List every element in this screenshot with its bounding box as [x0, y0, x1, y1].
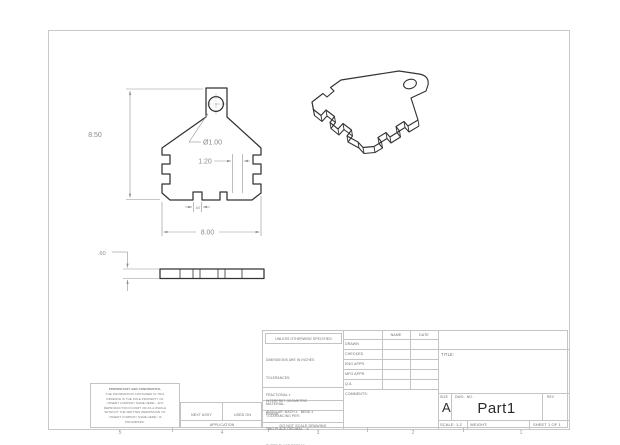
isometric-view	[312, 71, 428, 154]
dim-thickness: .60	[98, 251, 106, 257]
side-outline	[160, 269, 264, 279]
material-label: MATERIAL	[266, 402, 285, 406]
iso-hole	[403, 78, 418, 90]
dim-notch-pos: 1.20	[198, 159, 212, 166]
drawing-sheet: 5 4 3 2 1 8.50 Ø1.00 1	[0, 0, 620, 445]
dim-front-height: 8.50	[88, 132, 102, 139]
rev-label: REV	[547, 395, 554, 399]
do-not-scale-label: DO NOT SCALE DRAWING	[263, 424, 343, 428]
next-assy-label: NEXT ASSY	[181, 413, 222, 417]
size-value: A	[442, 400, 451, 415]
size-label: SIZE	[440, 395, 448, 399]
finish-label: FINISH	[266, 412, 278, 416]
front-view: 8.50 Ø1.00 1.20 .60	[88, 88, 261, 237]
unless-box: UNLESS OTHERWISE SPECIFIED:	[265, 333, 342, 344]
iso-outline	[312, 71, 428, 148]
dim-hole: Ø1.00	[203, 140, 222, 147]
proprietary-block: PROPRIETARY AND CONFIDENTIAL THE INFORMA…	[90, 383, 180, 428]
side-view: .60	[98, 251, 264, 291]
sheet-label: SHEET 1 OF 1	[533, 422, 561, 427]
title-block: UNLESS OTHERWISE SPECIFIED: DIMENSIONS A…	[262, 330, 568, 428]
dwg-no-value: Part1	[451, 400, 542, 417]
name-column-header: NAME	[382, 333, 410, 337]
date-column-header: DATE	[410, 333, 438, 337]
weight-label: WEIGHT:	[470, 422, 487, 427]
scale-value: SCALE: 1:2	[440, 422, 462, 427]
unless-label: UNLESS OTHERWISE SPECIFIED:	[266, 337, 343, 341]
proprietary-heading: PROPRIETARY AND CONFIDENTIAL	[93, 387, 177, 392]
dim-notch-width: .60	[195, 206, 200, 210]
title-label: TITLE:	[441, 352, 454, 357]
dim-front-width: 8.00	[201, 230, 215, 237]
application-label: APPLICATION	[181, 423, 263, 427]
dwg-no-label: DWG. NO.	[455, 395, 473, 399]
application-block: NEXT ASSY USED ON APPLICATION	[180, 402, 262, 428]
used-on-label: USED ON	[222, 413, 263, 417]
